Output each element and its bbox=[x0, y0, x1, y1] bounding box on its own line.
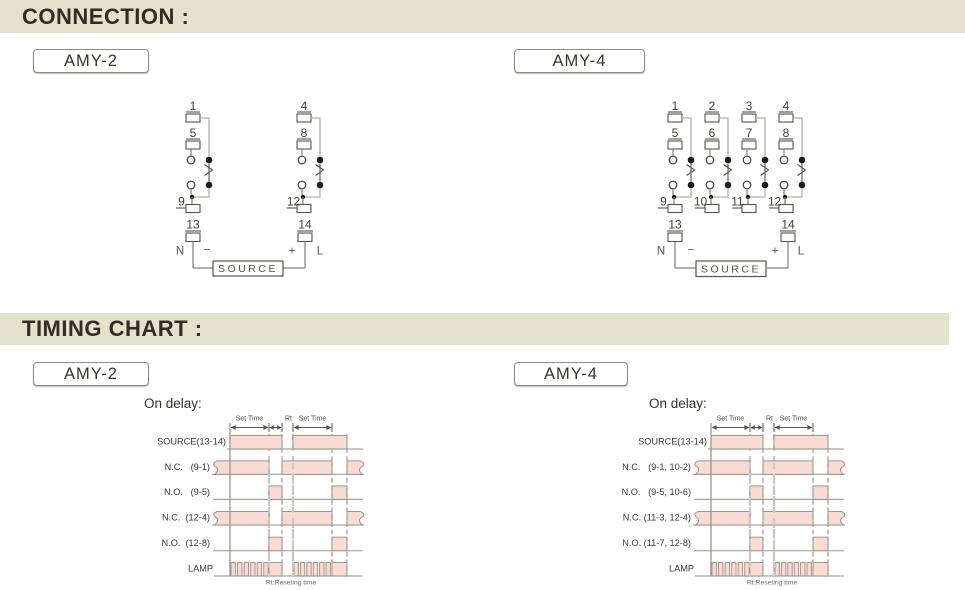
terminal-14: 14 bbox=[298, 218, 312, 232]
connection-section-bar: CONNECTION : bbox=[0, 0, 965, 33]
row-label-source: SOURCE(13-14) bbox=[638, 437, 707, 447]
row-label-no1: N.O. (9-5, 10-6) bbox=[622, 487, 691, 497]
terminal-12: 12 bbox=[768, 195, 782, 209]
reset-time-footnote: Rt:Reseting time bbox=[266, 580, 316, 587]
terminal-13: 13 bbox=[668, 218, 682, 232]
set-time-label-1: Set Time bbox=[717, 416, 745, 423]
amy4-timing-label: AMY-4 bbox=[514, 362, 628, 386]
terminal-13: 13 bbox=[186, 218, 200, 232]
terminal-5: 5 bbox=[190, 126, 197, 140]
terminal-9: 9 bbox=[660, 195, 667, 209]
connection-title: CONNECTION : bbox=[0, 0, 965, 33]
terminal-1: 1 bbox=[672, 99, 679, 113]
minus-label: − bbox=[688, 245, 695, 257]
row-label-nc2: N.C. (12-4) bbox=[162, 513, 210, 523]
amy4-timing-chart: Set Time Rt Set Time SOURCE(13-14) N.C. … bbox=[606, 411, 851, 590]
timing-title: TIMING CHART : bbox=[0, 313, 949, 345]
neutral-label: N bbox=[176, 246, 184, 258]
terminal-11: 11 bbox=[731, 195, 744, 209]
terminal-14: 14 bbox=[781, 218, 795, 232]
minus-label: − bbox=[204, 245, 211, 257]
terminal-8: 8 bbox=[301, 126, 308, 140]
terminal-5: 5 bbox=[672, 126, 679, 140]
row-label-lamp: LAMP bbox=[188, 564, 213, 574]
set-time-label-2: Set Time bbox=[299, 416, 327, 423]
rt-label: Rt bbox=[766, 416, 773, 423]
rt-label: Rt bbox=[285, 416, 292, 423]
row-label-nc2: N.C. (11-3, 12-4) bbox=[623, 513, 691, 523]
plus-label: + bbox=[289, 246, 296, 258]
line-label: L bbox=[317, 246, 324, 258]
row-label-no1: N.O. (9-5) bbox=[164, 487, 210, 497]
terminal-6: 6 bbox=[709, 126, 716, 140]
row-label-nc1: N.C. (9-1, 10-2) bbox=[622, 462, 691, 472]
datasheet-page: CONNECTION : AMY-2 AMY-4 1 5 9 4 8 12 13… bbox=[0, 0, 965, 590]
set-time-label-1: Set Time bbox=[236, 416, 264, 423]
terminal-10: 10 bbox=[694, 195, 708, 209]
amy2-on-delay-subtitle: On delay: bbox=[144, 396, 202, 411]
row-label-nc1: N.C. (9-1) bbox=[165, 462, 210, 472]
terminal-12: 12 bbox=[287, 195, 301, 209]
amy4-on-delay-subtitle: On delay: bbox=[649, 396, 707, 411]
row-label-no2: N.O. (11-7, 12-8) bbox=[622, 538, 691, 548]
line-label: L bbox=[798, 246, 805, 258]
terminal-1: 1 bbox=[190, 99, 197, 113]
amy2-timing-label: AMY-2 bbox=[33, 362, 149, 386]
source-label: SOURCE bbox=[701, 264, 761, 276]
timing-section-bar: TIMING CHART : bbox=[0, 313, 949, 345]
terminal-3: 3 bbox=[746, 99, 753, 113]
terminal-9: 9 bbox=[178, 195, 185, 209]
reset-time-footnote: Rt:Reseting time bbox=[747, 580, 797, 587]
terminal-4: 4 bbox=[301, 99, 308, 113]
terminal-2: 2 bbox=[709, 99, 716, 113]
source-label: SOURCE bbox=[218, 263, 278, 275]
amy2-timing-chart: Set Time Rt Set Time SOURCE(13-14) N.C. … bbox=[125, 411, 370, 590]
amy4-connection-label: AMY-4 bbox=[514, 49, 645, 73]
amy4-connection-diagram: 1 5 9 2 6 10 3 7 11 4 8 12 13 14 SOURCE … bbox=[645, 96, 820, 282]
neutral-label: N bbox=[657, 246, 665, 258]
terminal-8: 8 bbox=[783, 126, 790, 140]
set-time-label-2: Set Time bbox=[780, 416, 808, 423]
row-label-lamp: LAMP bbox=[669, 564, 694, 574]
plus-label: + bbox=[772, 246, 779, 258]
amy2-connection-diagram: 1 5 9 4 8 12 13 14 SOURCE N − + L bbox=[148, 96, 368, 282]
row-label-source: SOURCE(13-14) bbox=[157, 437, 226, 447]
amy2-connection-label: AMY-2 bbox=[33, 49, 149, 73]
row-label-no2: N.O. (12-8) bbox=[162, 538, 211, 548]
terminal-7: 7 bbox=[746, 126, 753, 140]
terminal-4: 4 bbox=[783, 99, 790, 113]
